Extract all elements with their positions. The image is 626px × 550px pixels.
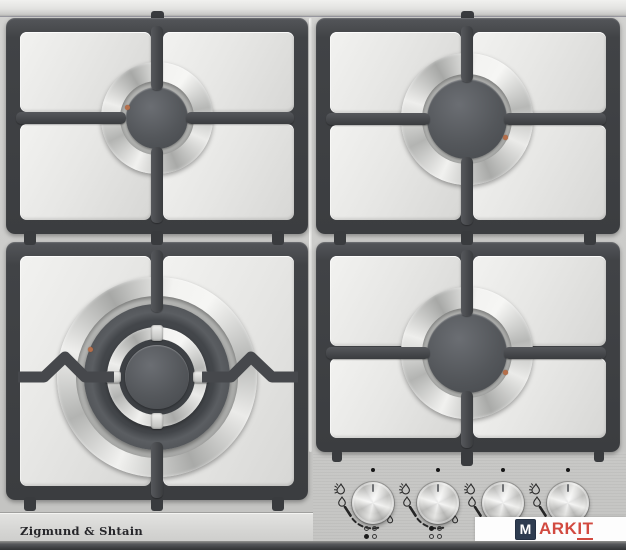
burner-cap (126, 87, 188, 149)
markit-it-underlined: IT (577, 519, 593, 540)
grate-foot (461, 231, 473, 245)
markit-ark: ARK (539, 519, 577, 538)
grate-zigzag-arm-left (18, 351, 114, 391)
grate-foot (151, 497, 163, 511)
indicator-dot (372, 534, 377, 539)
grate-foot (334, 231, 346, 245)
indicator-dot (437, 526, 442, 531)
knob-marker (567, 484, 569, 492)
grate-foot (24, 497, 36, 511)
flame-large-icon (399, 483, 412, 496)
position-dot (371, 468, 375, 472)
grate-finger (326, 113, 430, 125)
grate-finger (461, 391, 473, 448)
grate-finger (151, 147, 163, 223)
burner-cap (427, 79, 507, 159)
indicator-dot (429, 534, 434, 539)
grate-finger (151, 250, 163, 312)
markit-wordmark: ARKIT (539, 519, 593, 539)
indicator-dot-filled-rear-left (429, 526, 434, 531)
knob-marker (372, 484, 374, 492)
hob-front-edge (0, 541, 626, 550)
burner-position-indicator (364, 526, 378, 540)
hob-back-edge (0, 0, 626, 17)
grate-finger (186, 112, 294, 124)
indicator-dot (372, 526, 377, 531)
grate-foot (24, 231, 36, 245)
grate-finger (151, 26, 163, 90)
igniter-dot (503, 135, 508, 140)
indicator-dot-filled-front-left (364, 534, 369, 539)
grate-foot (151, 231, 163, 245)
position-dot (566, 468, 570, 472)
flame-large-icon (464, 483, 477, 496)
wok-ring-clip-bottom (151, 413, 163, 429)
knob-marker (437, 484, 439, 492)
grate-finger (461, 26, 473, 82)
knob-marker (502, 484, 504, 492)
product-photo-gas-hob: Zigmund & Shtain M ARKIT (0, 0, 626, 550)
center-divider-highlight (309, 18, 312, 452)
grate-foot (272, 231, 284, 245)
indicator-dot (437, 534, 442, 539)
brand-logotype: Zigmund & Shtain (20, 524, 143, 538)
burner-position-indicator (429, 526, 443, 540)
burner-cap (427, 313, 507, 393)
grate-finger (461, 157, 473, 225)
grate-zigzag-arm-right (202, 351, 298, 391)
markit-m-logo: M (515, 519, 536, 540)
markit-watermark: M ARKIT (475, 517, 626, 541)
wok-ring-clip-top (151, 325, 163, 341)
igniter-dot (503, 370, 508, 375)
flame-large-icon (334, 483, 347, 496)
grate-foot (584, 231, 596, 245)
indicator-dot (364, 526, 369, 531)
grate-finger (16, 112, 126, 124)
igniter-dot (125, 105, 130, 110)
grate-finger (461, 250, 473, 316)
grate-finger (504, 113, 606, 125)
position-dot (436, 468, 440, 472)
grate-finger (326, 347, 430, 359)
position-dot (501, 468, 505, 472)
grate-foot (272, 497, 284, 511)
wok-burner-cap (125, 345, 189, 409)
grate-finger (504, 347, 606, 359)
flame-large-icon (529, 483, 542, 496)
grate-finger (151, 442, 163, 498)
